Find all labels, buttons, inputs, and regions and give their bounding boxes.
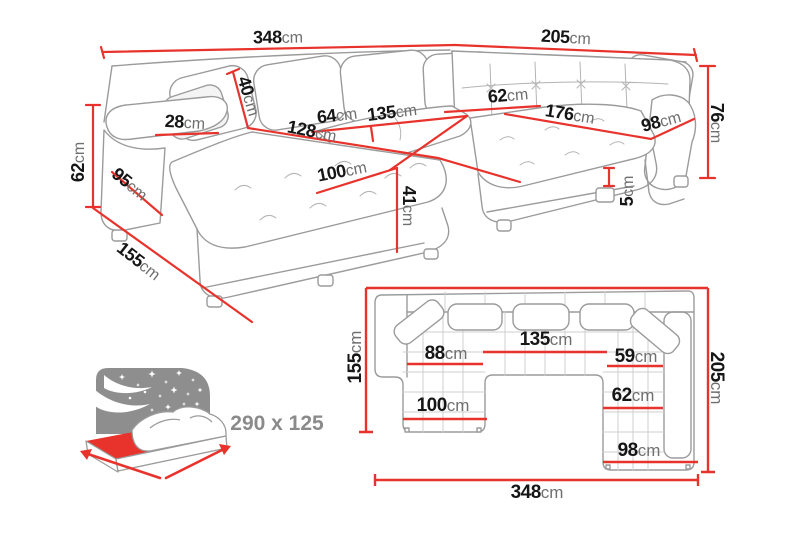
dim-label-5: 5cm [617, 176, 637, 207]
sofa-foot [674, 176, 688, 187]
sleeping-area-size: 290 x 125 [230, 412, 324, 435]
plan-foot-mark [477, 428, 481, 432]
dim-label-62-left: 62cm [68, 142, 88, 182]
sofa-foot [318, 275, 333, 286]
plan-view: 155cm 205cm 135cm 88cm 59cm 100cm 62cm 9… [345, 288, 727, 503]
dim-label-348: 348cm [253, 27, 303, 48]
chaise-base-bottom [202, 243, 424, 288]
plan-label-348: 348cm [511, 482, 564, 503]
plan-label-100: 100cm [417, 395, 470, 416]
dim-line-5 [604, 168, 614, 186]
plan-foot-mark [405, 428, 409, 432]
dim-label-76: 76cm [707, 103, 727, 143]
plan-label-88: 88cm [425, 343, 468, 364]
sleeping-function-icon: 290 x 125 [80, 368, 324, 478]
plan-label-59: 59cm [615, 346, 658, 367]
plan-label-62: 62cm [612, 385, 655, 406]
dim-label-155: 155cm [113, 238, 165, 284]
plan-foot-mark [606, 465, 610, 469]
plan-label-205: 205cm [706, 352, 727, 405]
plan-foot-mark [686, 465, 690, 469]
perspective-view: 348cm 205cm 76cm 62cm 95cm 155cm 28cm 40… [68, 26, 727, 322]
sofa-foot [424, 249, 438, 259]
dim-label-41: 41cm [399, 186, 419, 226]
dim-line-62-left [86, 105, 100, 207]
sofa-outline-perspective [101, 49, 695, 307]
diagram-canvas: 348cm 205cm 76cm 62cm 95cm 155cm 28cm 40… [0, 0, 800, 533]
plan-label-155: 155cm [345, 331, 366, 384]
sofa-foot [596, 188, 614, 202]
sofa-dimension-diagram: 348cm 205cm 76cm 62cm 95cm 155cm 28cm 40… [0, 0, 800, 533]
plan-label-98: 98cm [618, 440, 661, 461]
plan-label-135: 135cm [520, 329, 573, 350]
dim-label-205: 205cm [541, 26, 592, 49]
sofa-foot [497, 220, 511, 231]
